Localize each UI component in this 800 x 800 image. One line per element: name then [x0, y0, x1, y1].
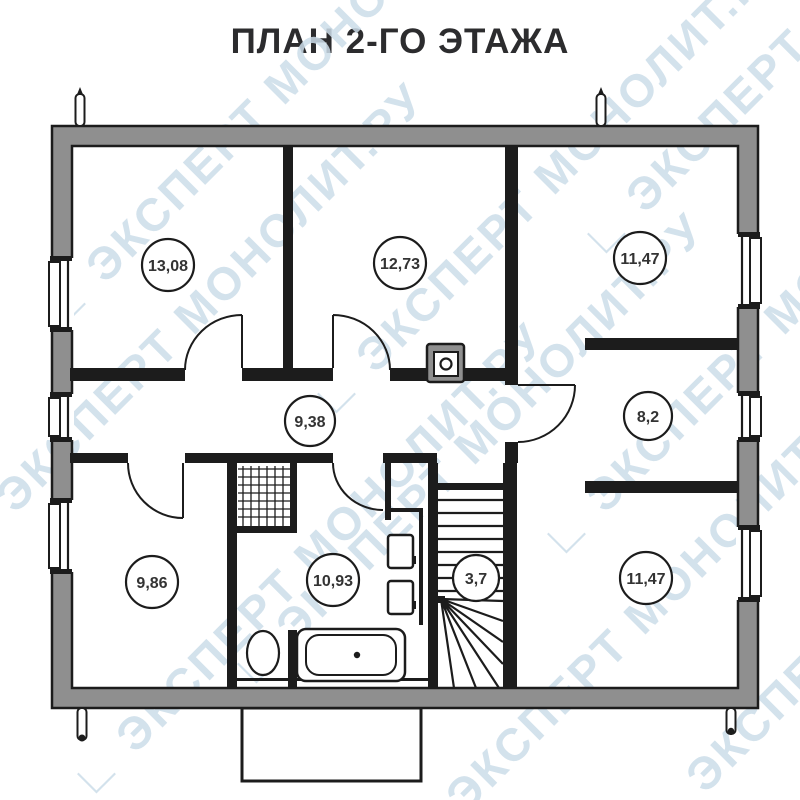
- room-area-badge-top-right: 11,47: [614, 232, 666, 284]
- hall-bottom-wall-a: [70, 453, 128, 463]
- room-area-label: 9,38: [294, 414, 325, 431]
- stair-entry-bar: [438, 483, 503, 490]
- wall-between-top-rooms: [283, 146, 293, 373]
- stair-pivot: [438, 596, 445, 603]
- room-area-badge-middle-right: 8,2: [624, 392, 672, 440]
- shaft-right-wall: [290, 463, 297, 533]
- room-area-label: 10,93: [313, 573, 353, 590]
- hall-top-wall-b: [242, 368, 333, 381]
- fixture-box-1: [388, 535, 416, 568]
- vent-pipe-bottom-right: [727, 708, 736, 734]
- vent-pipe-top-left: [76, 87, 85, 126]
- vent-pipe-bottom-left: [78, 708, 87, 742]
- toilet: [247, 631, 279, 675]
- stair-winders: [441, 599, 503, 688]
- window-right-2: [736, 391, 763, 442]
- hall-bottom-wall-c: [383, 453, 437, 463]
- room-area-label: 12,73: [380, 256, 420, 273]
- door-room-bottom-left: [128, 463, 183, 518]
- room-area-label: 8,2: [637, 409, 659, 426]
- chimney-stove: [427, 344, 464, 382]
- room-area-badge-hallway: 9,38: [285, 396, 335, 446]
- room-area-label: 9,86: [136, 575, 167, 592]
- floor-plan-svg: ∟ ЭКСПЕРТ МОНОЛИТ.РУ ∟ ЭКСПЕРТ МОНОЛИТ.Р…: [0, 0, 800, 800]
- shaft-bottom-wall: [230, 526, 297, 533]
- fixture-box-2: [388, 581, 416, 614]
- stairwell-left-wall: [428, 463, 438, 688]
- bathtub-drain: [354, 652, 360, 658]
- room-area-badge-bottom-right: 11,47: [620, 552, 672, 604]
- bath-counter-line: [419, 508, 423, 625]
- room-area-label: 13,08: [148, 258, 188, 275]
- room-area-label: 11,47: [626, 571, 665, 588]
- window-left-1: [47, 256, 74, 332]
- floor-plan-page: ПЛАН 2-ГО ЭТАЖА ∟ ЭКСПЕРТ МОНОЛИТ.РУ ∟ Э…: [0, 0, 800, 800]
- wall-top-right: [505, 146, 518, 385]
- partial-wall-right-1: [585, 338, 738, 350]
- hall-top-wall-a: [70, 368, 185, 381]
- window-right-1: [736, 232, 763, 309]
- bathroom-door-jamb: [385, 463, 391, 520]
- stairwell-right-wall: [503, 463, 517, 688]
- room-area-badge-bathroom: 10,93: [307, 554, 359, 606]
- bathroom-left-wall: [227, 453, 237, 688]
- bath-counter-top-line: [391, 508, 423, 512]
- porch-outline: [242, 708, 421, 781]
- wall-below-door: [505, 442, 518, 463]
- room-area-badge-bottom-left: 9,86: [126, 556, 178, 608]
- room-area-label: 3,7: [465, 571, 487, 588]
- room-area-badge-top-middle: 12,73: [374, 237, 426, 289]
- window-right-3: [736, 525, 763, 602]
- room-area-label: 11,47: [620, 251, 659, 268]
- window-left-2: [47, 392, 74, 442]
- ventilation-shaft-grid: [238, 466, 290, 526]
- hall-bottom-wall-b: [185, 453, 333, 463]
- bathtub: [297, 629, 405, 681]
- room-area-badge-top-left: 13,08: [142, 239, 194, 291]
- room-area-badge-staircase: 3,7: [453, 555, 499, 601]
- partial-wall-right-2: [585, 481, 738, 493]
- window-left-3: [47, 498, 74, 574]
